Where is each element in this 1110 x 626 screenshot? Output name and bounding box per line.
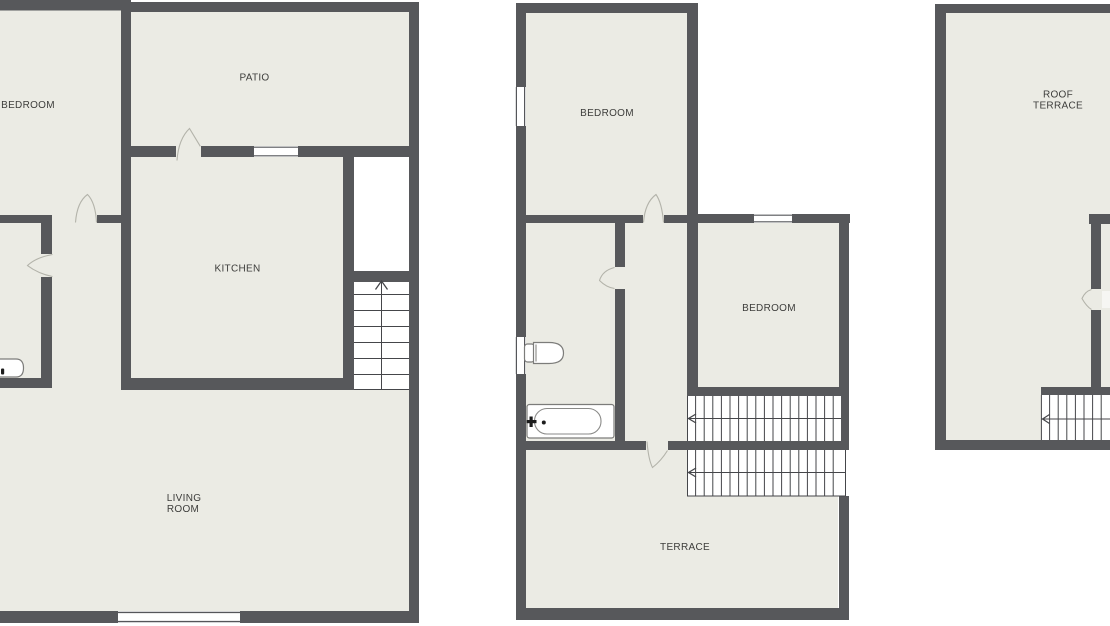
svg-text:BEDROOM: BEDROOM <box>580 108 634 119</box>
svg-text:TERRACE: TERRACE <box>660 542 710 553</box>
svg-text:LIVING: LIVING <box>167 493 202 504</box>
svg-text:BEDROOM: BEDROOM <box>742 303 796 314</box>
svg-text:PATIO: PATIO <box>239 72 269 83</box>
svg-text:ROOF: ROOF <box>1043 89 1073 100</box>
svg-text:TERRACE: TERRACE <box>1033 101 1083 112</box>
svg-text:BEDROOM: BEDROOM <box>1 100 55 111</box>
svg-text:KITCHEN: KITCHEN <box>215 263 261 274</box>
svg-text:ROOM: ROOM <box>167 504 199 515</box>
